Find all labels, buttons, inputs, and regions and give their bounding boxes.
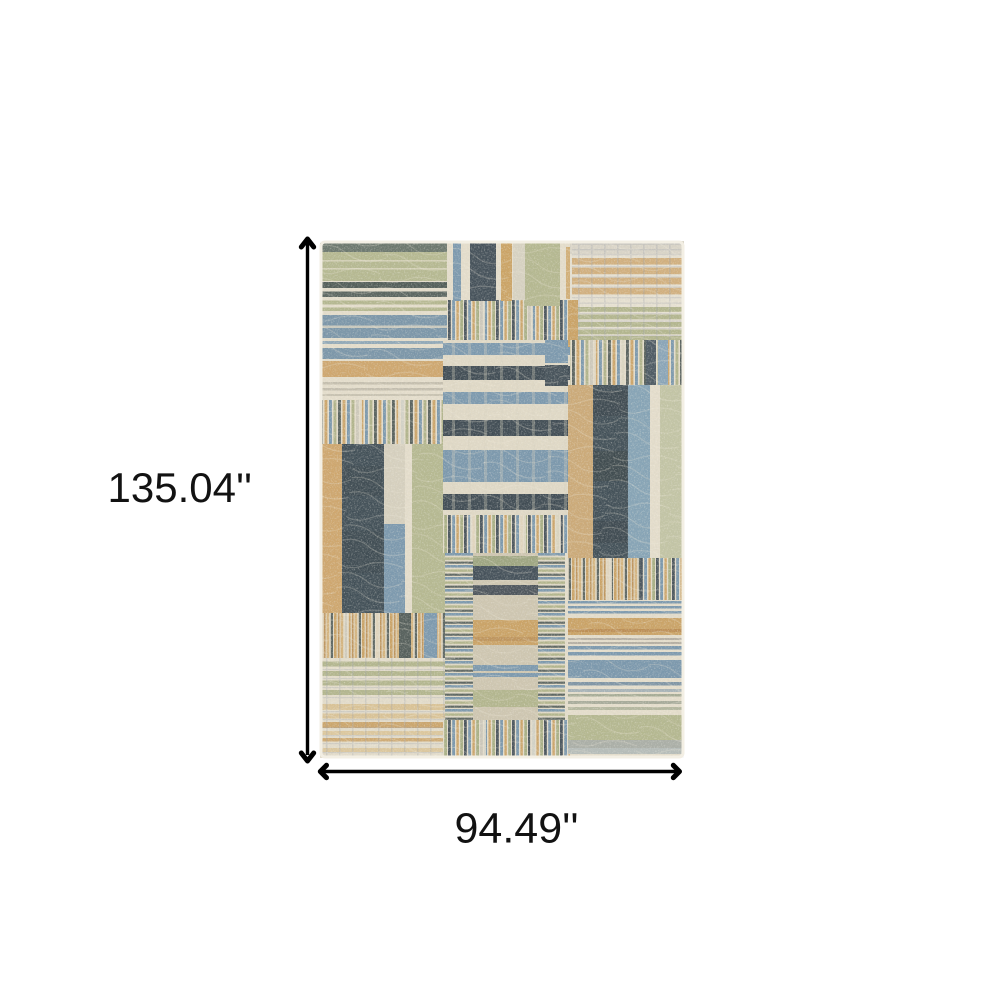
svg-text:135.04'': 135.04'' [108,464,253,511]
svg-text:94.49'': 94.49'' [455,805,579,853]
